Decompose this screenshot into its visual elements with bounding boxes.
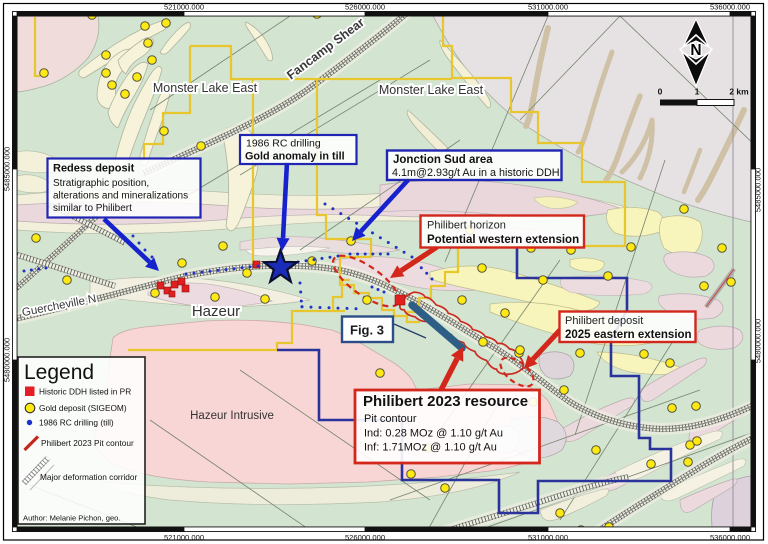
svg-text:0: 0 xyxy=(658,87,663,97)
svg-text:Ind: 0.28 MOz @ 1.10 g/t Au: Ind: 0.28 MOz @ 1.10 g/t Au xyxy=(364,428,503,440)
svg-text:Monster Lake East: Monster Lake East xyxy=(153,81,258,95)
svg-text:521000.000: 521000.000 xyxy=(164,3,204,12)
svg-text:526000.000: 526000.000 xyxy=(345,3,385,12)
svg-text:Stratigraphic position,: Stratigraphic position, xyxy=(53,178,149,189)
svg-text:Philibert 2023 resource: Philibert 2023 resource xyxy=(363,393,528,410)
svg-text:5485000.000: 5485000.000 xyxy=(3,147,12,191)
svg-text:Major deformation corridor: Major deformation corridor xyxy=(40,472,138,482)
svg-text:Jonction Sud area: Jonction Sud area xyxy=(393,154,493,166)
svg-text:531000.000: 531000.000 xyxy=(528,533,568,542)
svg-text:4.1m@2.93g/t Au in a historic: 4.1m@2.93g/t Au in a historic DDH xyxy=(392,167,560,179)
svg-text:alterations and mineralization: alterations and mineralizations xyxy=(53,191,188,202)
svg-text:5485000.000: 5485000.000 xyxy=(754,168,763,212)
svg-text:Gold anomaly in till: Gold anomaly in till xyxy=(245,151,345,163)
svg-text:5480000.000: 5480000.000 xyxy=(754,319,763,363)
svg-text:536000.000: 536000.000 xyxy=(710,533,750,542)
svg-text:Hazeur: Hazeur xyxy=(192,303,240,320)
svg-text:Philibert 2023 Pit contour: Philibert 2023 Pit contour xyxy=(41,438,134,448)
svg-text:1986 RC drilling (till): 1986 RC drilling (till) xyxy=(39,418,114,428)
svg-text:Fig. 3: Fig. 3 xyxy=(350,323,384,338)
svg-text:526000.000: 526000.000 xyxy=(345,533,385,542)
svg-text:1: 1 xyxy=(695,87,700,97)
svg-text:Gold deposit (SIGEOM): Gold deposit (SIGEOM) xyxy=(39,403,127,413)
svg-text:Pit contour: Pit contour xyxy=(364,413,417,425)
svg-text:5480000.000: 5480000.000 xyxy=(3,338,12,382)
svg-text:Monster Lake East: Monster Lake East xyxy=(379,83,484,97)
svg-text:536000.000: 536000.000 xyxy=(710,3,750,12)
svg-text:1986 RC drilling: 1986 RC drilling xyxy=(246,138,321,150)
svg-text:Historic DDH listed in PR: Historic DDH listed in PR xyxy=(39,387,131,397)
svg-text:Inf: 1.71MOz @ 1.10 g/t Au: Inf: 1.71MOz @ 1.10 g/t Au xyxy=(364,442,497,454)
svg-text:531000.000: 531000.000 xyxy=(528,3,568,12)
svg-text:2 km: 2 km xyxy=(729,87,749,97)
svg-text:Legend: Legend xyxy=(24,361,94,384)
svg-text:Author: Melanie Pichon, geo.: Author: Melanie Pichon, geo. xyxy=(23,514,121,523)
svg-text:Potential western extension: Potential western extension xyxy=(427,234,579,246)
svg-text:Philibert deposit: Philibert deposit xyxy=(565,315,643,327)
svg-text:Hazeur Intrusive: Hazeur Intrusive xyxy=(190,410,274,422)
svg-text:Redess deposit: Redess deposit xyxy=(53,163,135,175)
svg-text:2025 eastern extension: 2025 eastern extension xyxy=(565,329,692,341)
svg-text:521000.000: 521000.000 xyxy=(164,533,204,542)
svg-text:N: N xyxy=(690,42,701,59)
svg-text:Philibert horizon: Philibert horizon xyxy=(427,220,506,232)
svg-text:similar to Philibert: similar to Philibert xyxy=(53,203,132,214)
